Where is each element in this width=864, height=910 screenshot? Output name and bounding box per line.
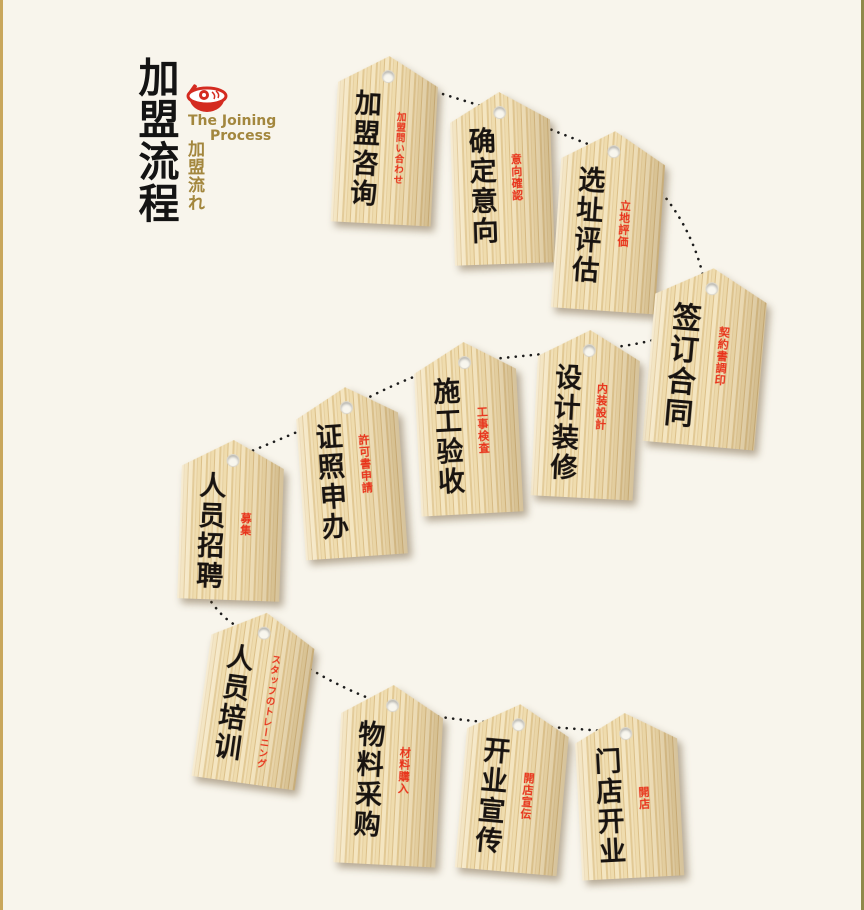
tag-hole-icon <box>257 626 272 641</box>
step-label-cn: 门店开业 <box>591 747 624 868</box>
wood-tag-face: 开业宣传 開店宣伝 <box>455 700 571 876</box>
tag-hole-icon <box>582 344 596 358</box>
flow-step-tag: 签订合同 契約書調印 <box>642 263 769 450</box>
step-label-cn: 施工验收 <box>430 377 463 498</box>
wood-tag-face: 施工验收 工事検査 <box>413 339 524 516</box>
tag-hole-icon <box>458 356 472 370</box>
step-label-cn: 签订合同 <box>660 300 700 430</box>
wood-tag-face: 门店开业 開店 <box>574 710 684 880</box>
flow-step-tag: 证照申办 許可書申請 <box>294 384 408 561</box>
wood-tag-face: 设计装修 内装設計 <box>531 327 642 500</box>
flow-step-tag: 人员招聘 募集 <box>177 438 285 601</box>
wood-tag-face: 确定意向 意向確認 <box>449 90 555 265</box>
tag-hole-icon <box>607 145 621 159</box>
title-block: 加盟流程 The Joining Process 加盟流れ <box>134 56 294 241</box>
flow-step-tag: 确定意向 意向確認 <box>449 90 555 265</box>
tag-hole-icon <box>705 282 719 296</box>
step-label-cn: 加盟咨询 <box>346 88 379 209</box>
wood-tag-face: 签订合同 契約書調印 <box>642 263 769 450</box>
page-title: 加盟流程 <box>134 56 175 224</box>
step-label-jp: スタッフのトレーニング <box>255 653 280 769</box>
tag-hole-icon <box>226 454 239 467</box>
tag-hole-icon <box>381 70 395 84</box>
step-label-jp: 開店宣伝 <box>519 772 534 821</box>
flow-step-tag: 物料采购 材料購入 <box>333 682 444 867</box>
step-label-jp: 契約書調印 <box>714 326 730 387</box>
step-label-jp: 加盟問い合わせ <box>392 112 405 186</box>
step-label-jp: 立地評価 <box>616 200 630 249</box>
wood-tag-face: 选址评估 立地評価 <box>551 128 667 315</box>
tag-hole-icon <box>619 727 633 741</box>
flow-step-tag: 开业宣传 開店宣伝 <box>455 700 571 876</box>
step-label-jp: 募集 <box>240 512 252 536</box>
flow-step-tag: 加盟咨询 加盟問い合わせ <box>331 53 440 226</box>
subtitle-en-line1: The Joining <box>188 114 288 129</box>
flow-step-tag: 选址评估 立地評価 <box>551 128 667 315</box>
step-label-cn: 设计装修 <box>547 362 580 483</box>
step-label-cn: 人员招聘 <box>193 471 224 592</box>
wood-tag-face: 物料采购 材料購入 <box>333 682 444 867</box>
step-label-cn: 开业宣传 <box>471 735 508 857</box>
step-label-jp: 材料購入 <box>397 747 410 796</box>
wood-tag-face: 人员招聘 募集 <box>177 438 285 601</box>
wood-tag-face: 加盟咨询 加盟問い合わせ <box>331 53 440 226</box>
tag-hole-icon <box>340 401 354 415</box>
step-label-jp: 意向確認 <box>510 153 523 201</box>
flow-step-tag: 门店开业 開店 <box>574 710 684 880</box>
subtitle-jp: 加盟流れ <box>185 140 202 212</box>
joining-process-infographic: 加盟流程 The Joining Process 加盟流れ 加盟咨询 加盟問い合… <box>0 0 864 910</box>
step-label-jp: 内装設計 <box>594 383 607 432</box>
ramen-bowl-icon <box>186 84 228 114</box>
step-label-jp: 許可書申請 <box>358 433 373 494</box>
step-label-cn: 证照申办 <box>312 422 347 544</box>
step-label-cn: 确定意向 <box>465 127 496 248</box>
step-label-cn: 人员培训 <box>209 642 252 765</box>
tag-hole-icon <box>386 699 400 713</box>
step-label-jp: 工事検査 <box>476 406 489 455</box>
flow-step-tag: 施工验收 工事検査 <box>413 339 524 516</box>
step-label-cn: 物料采购 <box>350 719 383 840</box>
tag-hole-icon <box>493 106 506 119</box>
step-label-jp: 開店 <box>638 786 650 811</box>
wood-tag-face: 证照申办 許可書申請 <box>294 384 408 561</box>
step-label-cn: 选址评估 <box>568 165 603 287</box>
flow-step-tag: 设计装修 内装設計 <box>531 327 642 500</box>
tag-hole-icon <box>511 718 525 732</box>
